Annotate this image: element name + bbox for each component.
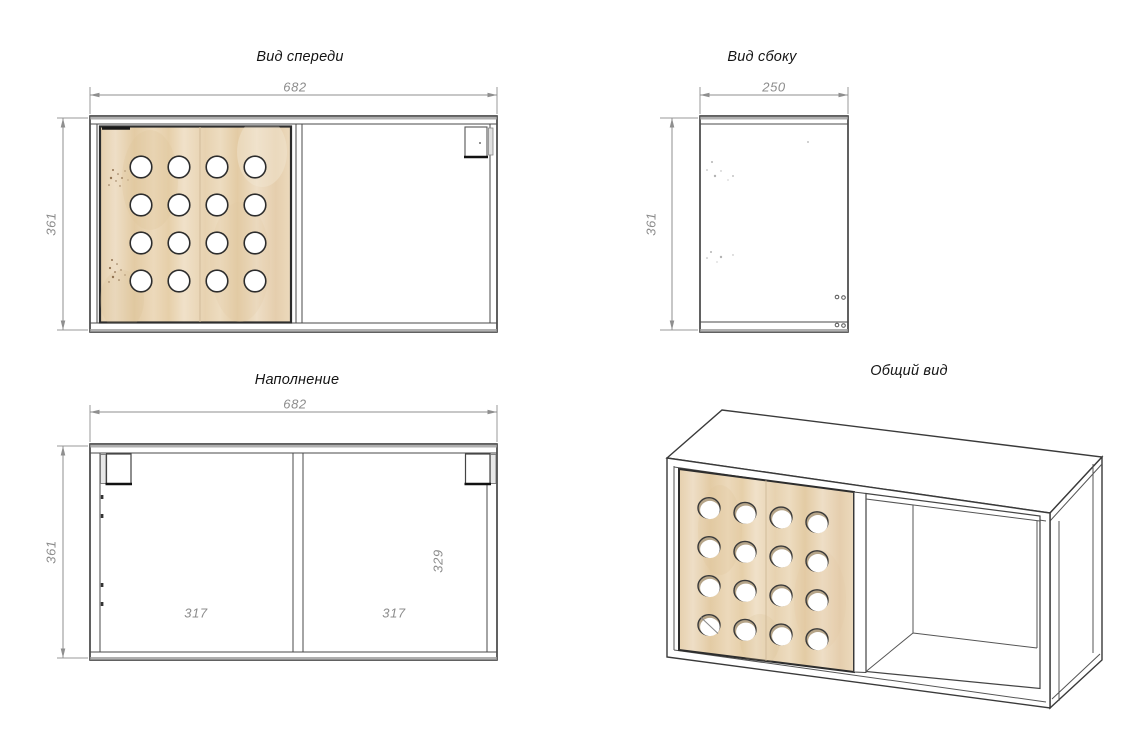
drawing-canvas [0, 0, 1135, 743]
overall-divider [854, 492, 866, 673]
filling-view-title: Наполнение [255, 372, 339, 388]
front-wall-bracket [464, 127, 493, 157]
filling-wall-bracket-right [465, 454, 497, 484]
filling-inner-height-dimension: 329 [431, 549, 446, 573]
filling-wall-bracket-left [101, 454, 133, 484]
filling-right-compartment-dimension: 317 [382, 606, 406, 621]
overall-view-title: Общий вид [870, 363, 947, 379]
side-height-dimension: 361 [644, 212, 659, 236]
overall-view [667, 410, 1102, 708]
overall-open-compartment [866, 494, 1040, 689]
front-view [57, 87, 497, 332]
filling-left-compartment-dimension: 317 [184, 606, 208, 621]
front-view-title: Вид спереди [256, 49, 343, 65]
filling-width-dimension: 682 [283, 397, 307, 412]
side-depth-dimension: 250 [762, 80, 786, 95]
side-cabinet-body [700, 116, 848, 332]
technical-drawing-page: Вид спереди Вид сбоку Наполнение Общий в… [0, 0, 1135, 743]
filling-view [57, 405, 497, 660]
front-width-dimension: 682 [283, 80, 307, 95]
side-view [660, 87, 848, 332]
side-view-title: Вид сбоку [727, 49, 796, 65]
filling-height-dimension: 361 [44, 540, 59, 564]
front-height-dimension: 361 [44, 212, 59, 236]
